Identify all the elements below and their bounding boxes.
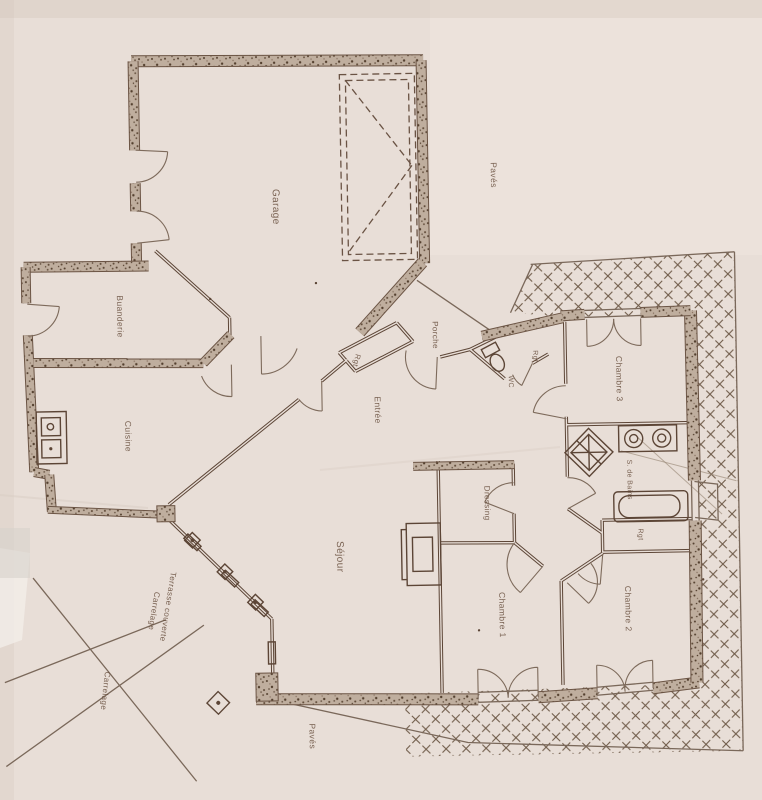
area-label-paves-bottom: Pavés xyxy=(307,723,317,749)
area-label-paves-top: Pavés xyxy=(489,162,499,188)
room-label-chambre3: Chambre 3 xyxy=(614,356,625,402)
room-label-salle-de-bains: S. de Bains xyxy=(625,460,633,500)
double-washbasin xyxy=(618,425,676,452)
room-label-rgt-hall: Rgt xyxy=(351,353,363,368)
room-label-wc: WC xyxy=(507,375,514,388)
scanned-floor-plan: Garage Pavés Buanderie Cuisine Rgt Porch… xyxy=(0,0,762,800)
room-label-buanderie: Buanderie xyxy=(115,295,126,338)
room-label-garage: Garage xyxy=(270,189,282,225)
room-label-entree: Entrée xyxy=(373,396,383,424)
fixtures xyxy=(34,275,707,717)
toilet xyxy=(481,342,508,374)
room-label-chambre1: Chambre 1 xyxy=(497,592,508,638)
room-label-rgt-sdb: Rgt xyxy=(636,528,643,540)
room-label-dressing: Dressing xyxy=(482,486,492,521)
room-label-rgt-wc: Rgt xyxy=(531,350,538,362)
room-label-cuisine: Cuisine xyxy=(123,421,134,452)
garage-door xyxy=(339,73,417,260)
room-label-chambre2: Chambre 2 xyxy=(623,586,634,632)
area-label-terrasse: Terrasse couverte xyxy=(158,571,178,642)
kitchen-sink xyxy=(36,411,67,464)
room-label-sejour: Séjour xyxy=(334,541,346,573)
terrace-posts xyxy=(185,531,266,714)
area-label-terrasse-mat: Carrelage xyxy=(147,591,162,631)
fireplace xyxy=(401,523,441,586)
shower xyxy=(565,428,614,477)
bay-window-panels xyxy=(184,532,276,665)
floor-plan-drawing: Garage Pavés Buanderie Cuisine Rgt Porch… xyxy=(0,0,762,800)
windows xyxy=(471,307,702,702)
area-label-carrelage: Carrelage xyxy=(99,671,112,711)
room-label-porche: Porche xyxy=(431,321,440,349)
